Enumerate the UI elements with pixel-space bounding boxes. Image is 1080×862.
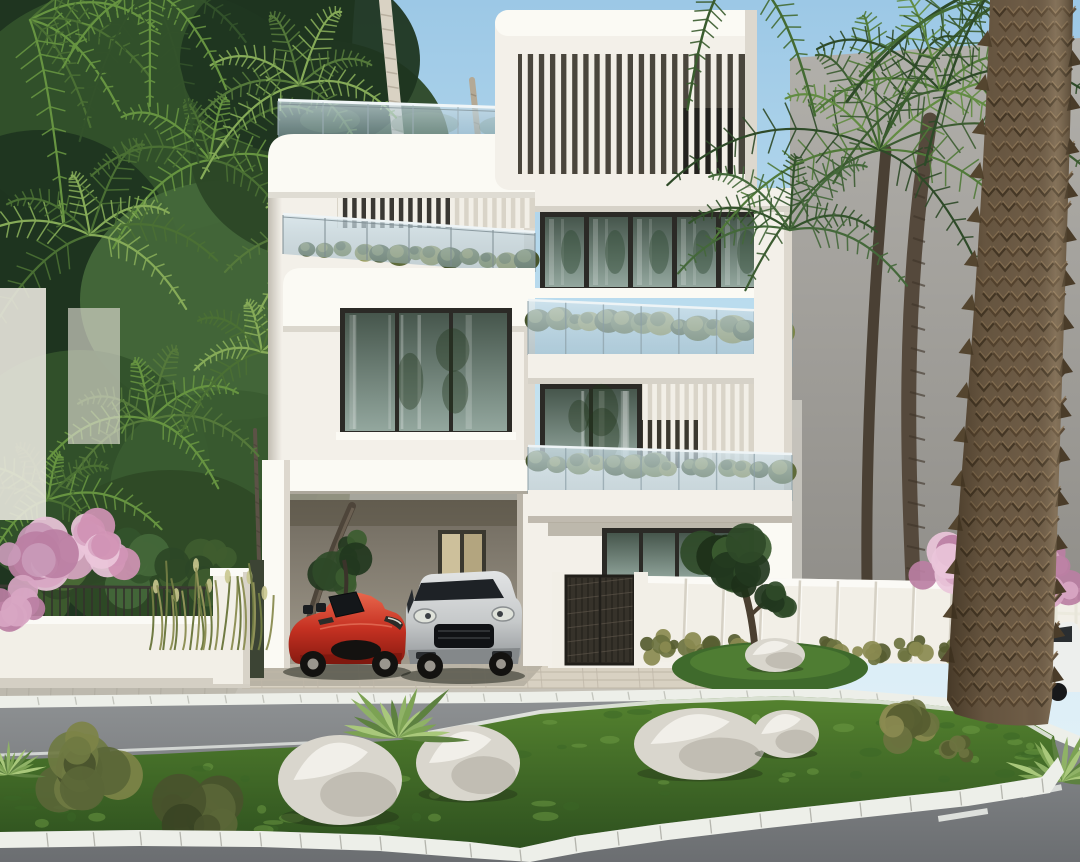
gate-lattice (566, 576, 634, 664)
top-volume (495, 10, 757, 190)
rim-front (380, 659, 391, 670)
architectural-rendering: Sunny architectural rendering of a moder… (0, 0, 1080, 862)
recess-top-shadow (286, 500, 517, 526)
distant-white-wall-2 (68, 308, 120, 444)
headrest-2 (316, 603, 326, 612)
headlight-pupil-2 (497, 611, 503, 617)
rim-rear (308, 659, 319, 670)
garden-rock (745, 638, 805, 673)
left-picture-window (336, 308, 516, 440)
distant-white-wall (0, 288, 46, 520)
headlight-pupil (425, 613, 431, 619)
right-window-panes (545, 217, 760, 287)
headrest (303, 605, 313, 614)
right-window-row (535, 212, 792, 298)
left-wall-base-shade (0, 678, 250, 688)
right-balcony-lower (526, 446, 797, 523)
suv-grille (434, 624, 494, 648)
rendering-canvas (0, 0, 1080, 862)
entrance-gate (552, 572, 648, 668)
suv-rim-right (496, 659, 506, 669)
suv-rim-left (425, 661, 436, 672)
pillar-left-shade (284, 460, 290, 668)
grille (331, 640, 381, 660)
left-wing-edge-rounding (268, 158, 282, 460)
